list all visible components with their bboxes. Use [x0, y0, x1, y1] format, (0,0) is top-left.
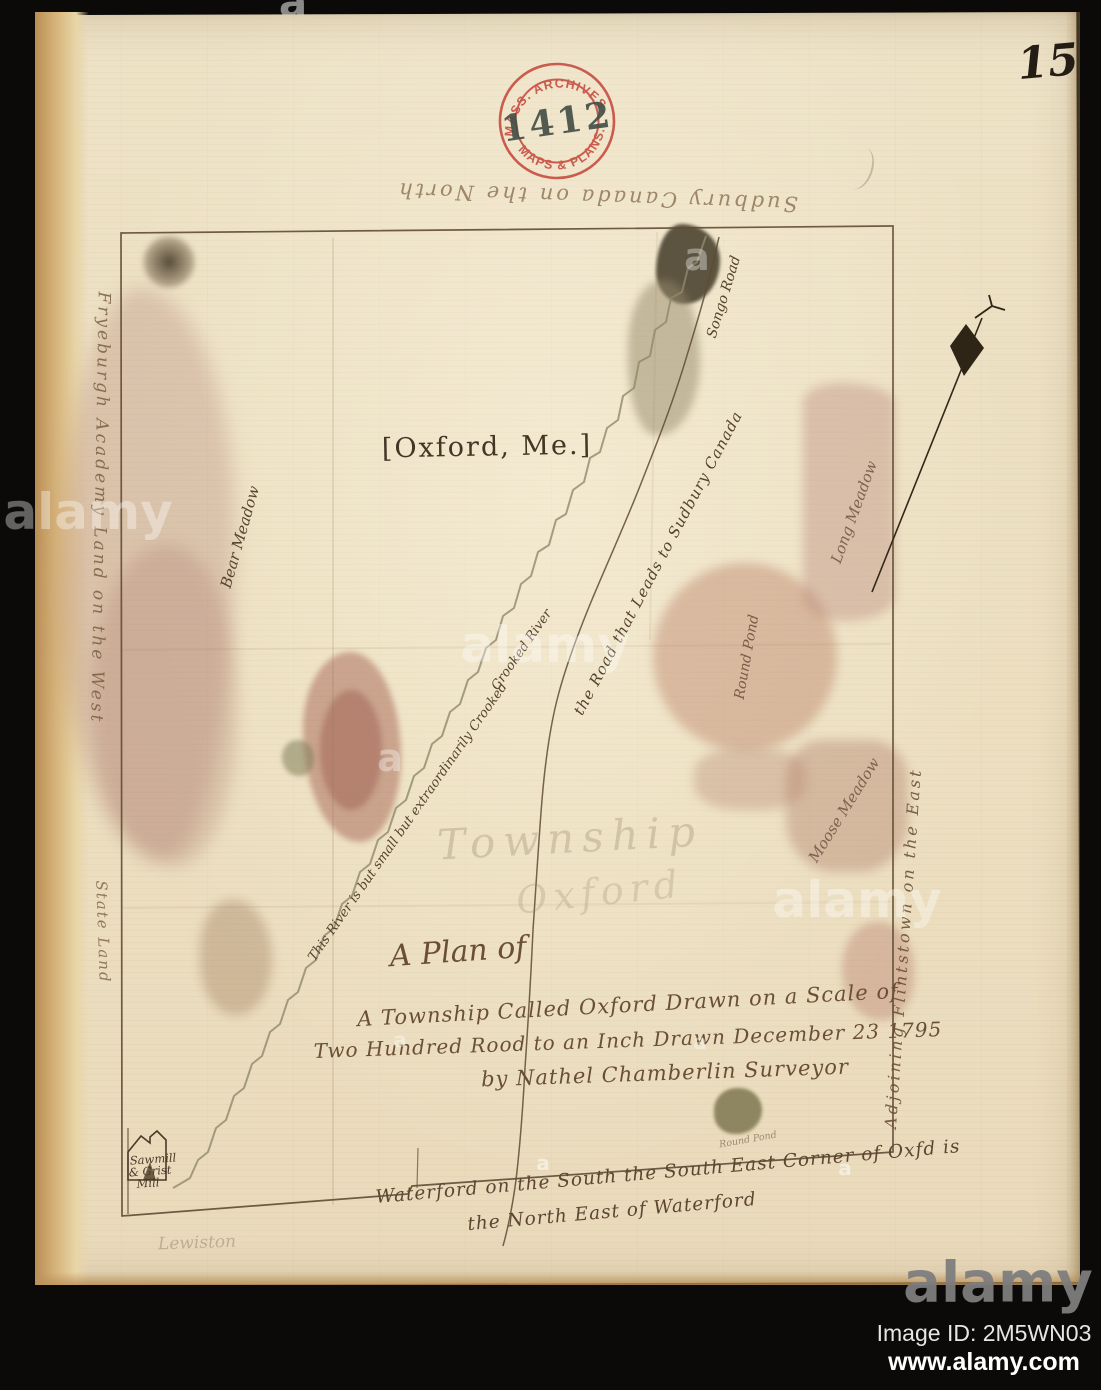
page-number: 15 [1015, 34, 1080, 90]
songo-road-line [503, 237, 719, 1246]
alamy-watermark-logo: alamy [772, 871, 941, 929]
alamy-watermark-letter: a [684, 235, 710, 279]
map-bracket-title: [Oxford, Me.] [382, 430, 593, 465]
pencil-name-ghost: Lewiston [158, 1232, 237, 1255]
stock-photo-scan: a [0, 0, 1101, 1390]
state-land-note: State Land [92, 880, 114, 984]
archives-stamp: MASS. ARCHIVES. MAPS & PLANS. 1412 [487, 52, 627, 191]
north-arrow-flourish [975, 295, 1005, 318]
alamy-url: www.alamy.com [874, 1348, 1094, 1377]
alamy-watermark-letter: a [536, 1151, 550, 1175]
alamy-logo-bottom: alamy [903, 1251, 1093, 1316]
mill-label-3: Mill [136, 1175, 160, 1191]
lot-line [417, 1148, 418, 1188]
alamy-image-id: Image ID: 2M5WN03 [874, 1320, 1094, 1347]
alamy-watermark-logo: alamy [460, 616, 629, 674]
north-arrow-head [950, 324, 984, 376]
alamy-watermark-letter: a [377, 736, 403, 780]
alamy-watermark-logo: alamy [3, 483, 172, 541]
alamy-watermark-letter: a [838, 1156, 852, 1180]
alamy-watermark-letter: a [693, 1030, 707, 1054]
alamy-watermark-letter: a [393, 1028, 407, 1052]
north-arrow [872, 295, 1005, 592]
